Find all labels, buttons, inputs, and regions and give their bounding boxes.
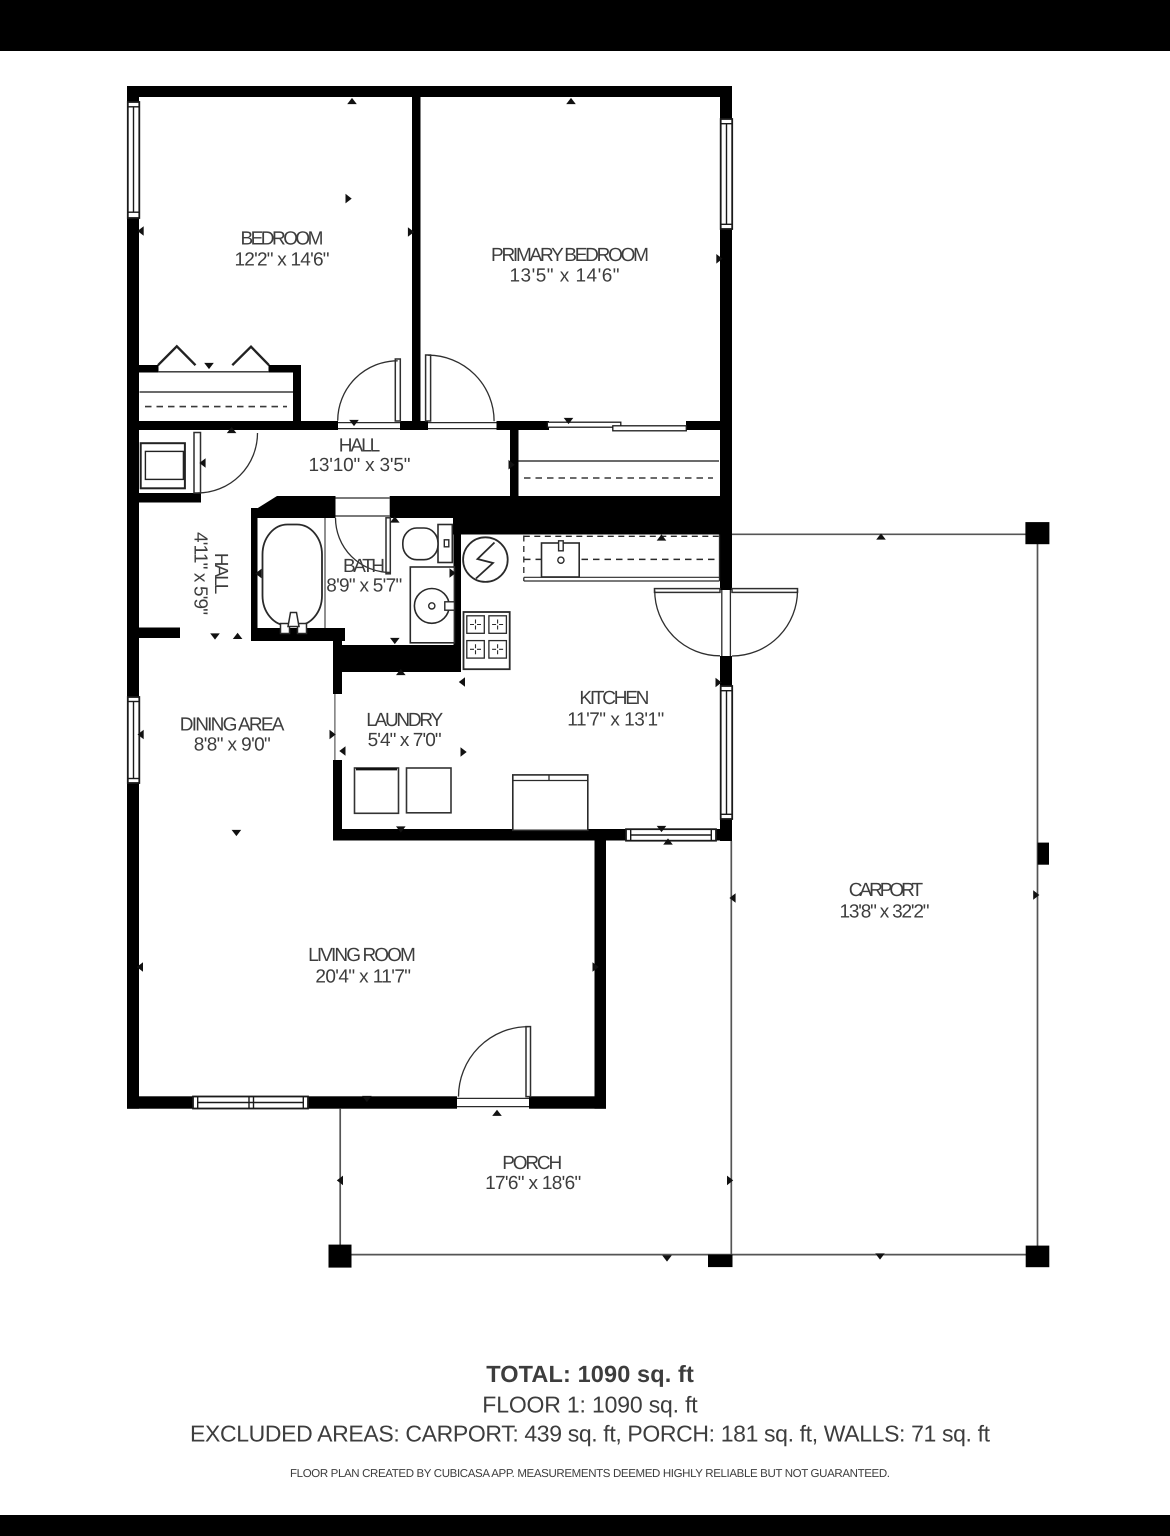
svg-text:DINING AREA: DINING AREA (180, 714, 285, 735)
svg-text:TOTAL: 1090 sq. ft: TOTAL: 1090 sq. ft (486, 1361, 694, 1387)
svg-text:8'9" x 5'7": 8'9" x 5'7" (326, 576, 402, 597)
svg-text:HALL: HALL (210, 553, 231, 595)
svg-text:4'11" x 5'9": 4'11" x 5'9" (189, 532, 210, 615)
svg-text:13'10" x 3'5": 13'10" x 3'5" (309, 455, 411, 476)
svg-text:CARPORT: CARPORT (849, 880, 924, 901)
svg-text:LAUNDRY: LAUNDRY (366, 710, 443, 731)
svg-text:17'6" x 18'6": 17'6" x 18'6" (485, 1173, 581, 1194)
svg-text:11'7" x 13'1": 11'7" x 13'1" (567, 710, 664, 731)
svg-text:20'4" x 11'7": 20'4" x 11'7" (315, 967, 411, 988)
svg-text:PRIMARY BEDROOM: PRIMARY BEDROOM (491, 245, 649, 266)
svg-text:13'5" x 14'6": 13'5" x 14'6" (510, 266, 620, 287)
svg-text:FLOOR 1: 1090 sq. ft: FLOOR 1: 1090 sq. ft (482, 1392, 698, 1418)
svg-text:LIVING ROOM: LIVING ROOM (308, 945, 416, 966)
svg-text:KITCHEN: KITCHEN (579, 688, 649, 709)
svg-text:BATH: BATH (343, 556, 385, 577)
svg-text:PORCH: PORCH (502, 1153, 562, 1174)
svg-text:HALL: HALL (339, 435, 381, 456)
svg-text:FLOOR PLAN CREATED BY CUBICASA: FLOOR PLAN CREATED BY CUBICASA APP. MEAS… (290, 1468, 890, 1480)
svg-text:13'8" x 32'2": 13'8" x 32'2" (840, 902, 930, 923)
svg-text:8'8" x 9'0": 8'8" x 9'0" (194, 735, 271, 756)
svg-text:12'2" x 14'6": 12'2" x 14'6" (235, 249, 330, 270)
svg-text:EXCLUDED AREAS: CARPORT: 439 s: EXCLUDED AREAS: CARPORT: 439 sq. ft, POR… (190, 1421, 991, 1447)
svg-text:5'4" x 7'0": 5'4" x 7'0" (368, 730, 442, 751)
svg-text:BEDROOM: BEDROOM (241, 229, 324, 250)
